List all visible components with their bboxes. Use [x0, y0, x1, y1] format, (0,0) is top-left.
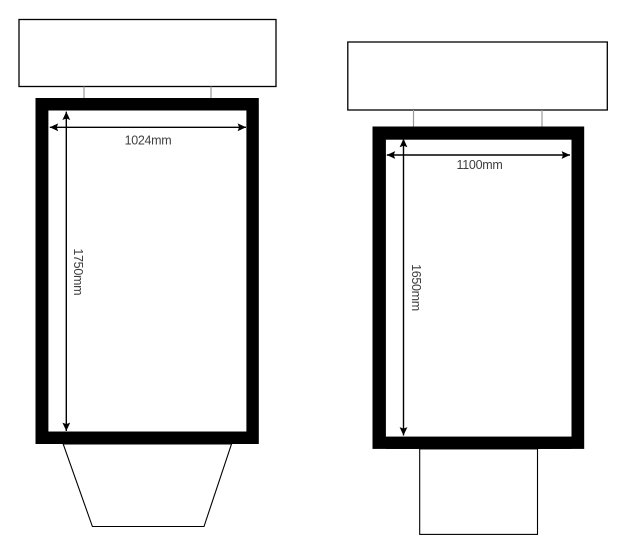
svg-text:1024mm: 1024mm — [125, 134, 172, 148]
svg-text:1650mm: 1650mm — [409, 264, 423, 311]
svg-text:1750mm: 1750mm — [71, 248, 85, 295]
svg-text:1100mm: 1100mm — [457, 158, 503, 172]
